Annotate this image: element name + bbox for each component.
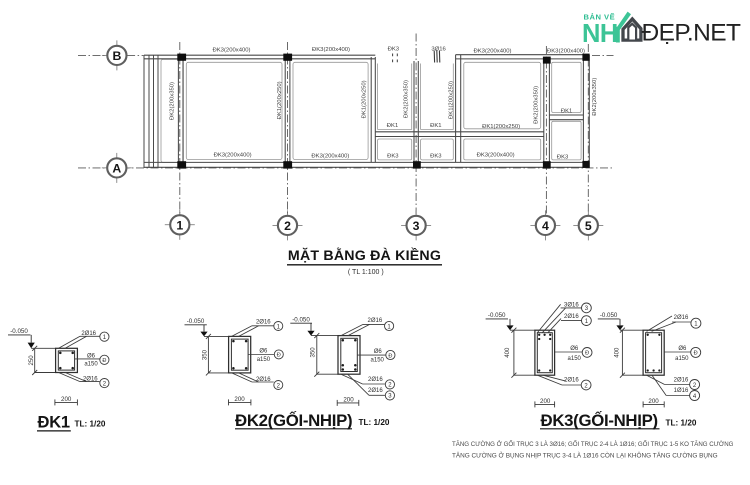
svg-text:250: 250 (28, 355, 35, 366)
svg-text:1: 1 (176, 218, 183, 232)
svg-text:MẶT BẰNG ĐÀ KIỀNG: MẶT BẰNG ĐÀ KIỀNG (288, 246, 441, 264)
svg-text:2Ø16: 2Ø16 (81, 331, 96, 337)
svg-text:a150: a150 (257, 357, 271, 363)
svg-text:Ø6: Ø6 (570, 346, 579, 352)
svg-text:a150: a150 (675, 356, 689, 362)
svg-text:5: 5 (585, 219, 592, 233)
svg-text:400: 400 (614, 347, 621, 358)
svg-text:-0.050: -0.050 (488, 312, 506, 319)
svg-text:2Ø16: 2Ø16 (368, 388, 383, 394)
svg-text:ĐK1: ĐK1 (561, 109, 572, 115)
svg-text:TL: 1/20: TL: 1/20 (666, 418, 697, 427)
svg-text:200: 200 (61, 396, 72, 403)
svg-text:ĐK1(200x250): ĐK1(200x250) (361, 80, 367, 118)
svg-text:ĐK2(GỐI-NHỊP): ĐK2(GỐI-NHỊP) (235, 410, 352, 430)
svg-text:350: 350 (310, 347, 317, 358)
svg-text:TL: 1/20: TL: 1/20 (359, 418, 390, 427)
svg-text:Đ: Đ (585, 351, 589, 357)
svg-text:Ø6: Ø6 (678, 346, 687, 352)
svg-text:3Ø16: 3Ø16 (564, 303, 579, 309)
svg-text:ĐK3(200x400): ĐK3(200x400) (311, 153, 349, 159)
svg-text:TĂNG CƯỜNG Ở GỐI TRỤC 3 LÀ 3Ø1: TĂNG CƯỜNG Ở GỐI TRỤC 3 LÀ 3Ø16; GỐI TRỤ… (452, 441, 734, 448)
svg-text:ĐK3(200x400): ĐK3(200x400) (474, 49, 512, 55)
svg-text:a150: a150 (84, 362, 98, 368)
svg-text:350: 350 (202, 349, 209, 360)
svg-text:NH: NH (582, 20, 618, 48)
svg-text:ĐK2(200x350): ĐK2(200x350) (534, 86, 540, 124)
svg-text:2Ø16: 2Ø16 (368, 318, 383, 324)
svg-text:Đ: Đ (102, 358, 106, 364)
svg-text:ĐK3(GỐI-NHỊP): ĐK3(GỐI-NHỊP) (541, 410, 658, 430)
svg-text:ĐK2(200x350): ĐK2(200x350) (592, 78, 598, 116)
svg-text:3: 3 (413, 219, 420, 233)
svg-text:-0.050: -0.050 (292, 316, 310, 323)
svg-text:2Ø16: 2Ø16 (256, 377, 271, 383)
svg-text:ĐK1(200x250): ĐK1(200x250) (277, 81, 283, 119)
svg-text:ĐK1(200x250): ĐK1(200x250) (482, 124, 520, 130)
svg-text:1Ø16: 1Ø16 (674, 388, 689, 394)
svg-text:ĐK2(200x350): ĐK2(200x350) (404, 80, 410, 118)
svg-text:TĂNG CƯỜNG Ở BỤNG NHỊP TRỤC 3-: TĂNG CƯỜNG Ở BỤNG NHỊP TRỤC 3-4 LÀ 1Ø16 … (452, 450, 718, 459)
svg-text:B: B (112, 49, 121, 63)
svg-text:2Ø16: 2Ø16 (674, 378, 689, 384)
svg-text:2Ø16: 2Ø16 (564, 377, 579, 383)
svg-text:200: 200 (540, 398, 551, 405)
svg-text:2: 2 (284, 219, 291, 233)
svg-text:ĐK3: ĐK3 (388, 47, 400, 53)
svg-text:200: 200 (234, 396, 245, 403)
svg-text:ĐK3: ĐK3 (430, 154, 442, 160)
svg-text:ĐK1: ĐK1 (38, 413, 70, 431)
svg-text:2Ø16: 2Ø16 (83, 377, 98, 383)
svg-text:A: A (112, 162, 121, 176)
svg-text:a150: a150 (568, 356, 582, 362)
svg-text:( TL 1:100 ): ( TL 1:100 ) (348, 269, 384, 276)
svg-text:ĐK3(200x400): ĐK3(200x400) (547, 49, 585, 55)
svg-text:ĐK3(200x400): ĐK3(200x400) (214, 152, 252, 158)
svg-text:2Ø16: 2Ø16 (256, 319, 271, 325)
svg-text:Đ: Đ (694, 351, 698, 357)
svg-text:200: 200 (648, 398, 659, 405)
svg-text:2Ø16: 2Ø16 (368, 377, 383, 383)
svg-text:Ø6: Ø6 (374, 349, 383, 355)
svg-text:400: 400 (504, 347, 511, 358)
svg-text:Đ: Đ (388, 353, 392, 359)
svg-text:a150: a150 (371, 358, 385, 364)
svg-text:ĐẸP.NET: ĐẸP.NET (642, 19, 741, 46)
svg-text:TL: 1/20: TL: 1/20 (75, 419, 106, 428)
svg-text:-0.050: -0.050 (10, 328, 28, 335)
svg-text:Đ: Đ (277, 353, 281, 359)
svg-text:ĐK3: ĐK3 (557, 155, 569, 161)
svg-text:Ø6: Ø6 (259, 348, 268, 354)
svg-text:-0.050: -0.050 (187, 318, 205, 325)
svg-text:ĐK1(200x250): ĐK1(200x250) (449, 81, 455, 119)
svg-text:ĐK3(200x400): ĐK3(200x400) (312, 47, 350, 53)
svg-text:Ø6: Ø6 (87, 354, 96, 360)
svg-text:4: 4 (542, 219, 549, 233)
svg-text:ĐK1: ĐK1 (430, 123, 441, 129)
svg-text:ĐK2(200x350): ĐK2(200x350) (169, 82, 175, 120)
svg-text:ĐK1: ĐK1 (387, 123, 398, 129)
svg-text:200: 200 (343, 396, 354, 403)
svg-text:2Ø16: 2Ø16 (564, 314, 579, 320)
svg-text:ĐK3(200x400): ĐK3(200x400) (477, 152, 515, 158)
svg-text:2Ø16: 2Ø16 (674, 315, 689, 321)
svg-text:ĐK3(200x400): ĐK3(200x400) (213, 47, 251, 53)
svg-text:-0.050: -0.050 (600, 312, 618, 319)
svg-text:ĐK3: ĐK3 (387, 154, 399, 160)
